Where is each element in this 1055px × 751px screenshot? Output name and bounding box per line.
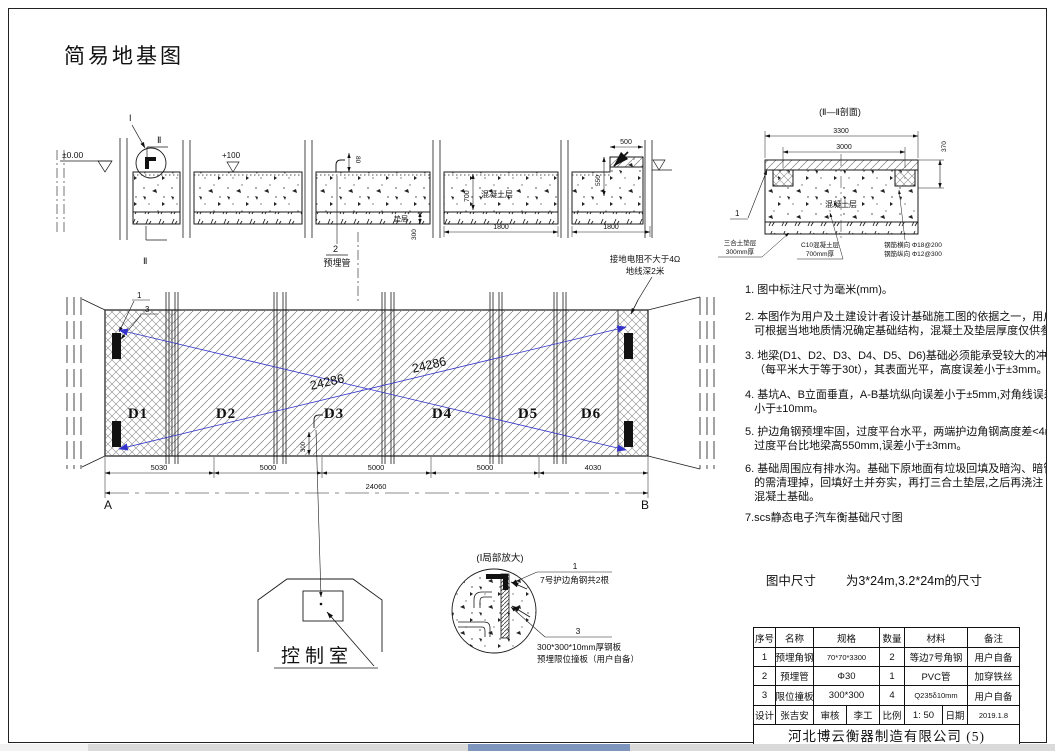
- header-remark: 备注: [968, 628, 1019, 647]
- cell-spec: Φ30: [814, 667, 880, 685]
- parts-table: 序号 名称 规格 数量 材料 备注 1 预埋角钢 70*70*3300 2 等边…: [753, 627, 1020, 745]
- dim-segment-1: 5030: [151, 463, 168, 472]
- cell-material: Q235δ10mm: [905, 686, 968, 705]
- checker-name: 李工: [847, 706, 880, 724]
- dim-segment-2: 5000: [260, 463, 277, 472]
- note-line: 2. 本图作为用户及土建设计者设计基础施工图的依据之一，用户: [745, 310, 1046, 324]
- note-line: 混凝土基础。: [745, 490, 1046, 504]
- plan-ref-1: 1: [137, 291, 142, 300]
- cell-qty: 4: [880, 686, 905, 705]
- corner-a-label: A: [104, 498, 112, 512]
- note-line: 小于±10mm。: [745, 402, 1046, 416]
- note-line: 过度平台比地梁高550mm,误差小于±3mm。: [745, 439, 1046, 453]
- note-3: 3. 地梁(D1、D2、D3、D4、D5、D6)基础必须能承受较大的冲击和 （每…: [745, 349, 1046, 377]
- top-cross-section: ±0.00: [57, 113, 672, 302]
- callout-i-label: I: [129, 113, 132, 123]
- dim-segment-4: 5000: [477, 463, 494, 472]
- cell-remark: 用户自备: [968, 686, 1019, 705]
- note-line: （每平米大于等于30t），其表面光平，高度误差小于±3mm。: [745, 363, 1046, 377]
- section-mark-bottom: Ⅱ: [143, 256, 147, 266]
- cell-no: 1: [754, 648, 776, 666]
- scale-label: 比例: [880, 706, 905, 724]
- dim-550: 550: [595, 175, 602, 186]
- bottom-strip-left: [0, 744, 88, 751]
- company-row: 河北博云衡器制造有限公司 (5): [754, 725, 1019, 744]
- corner-b-label: B: [641, 498, 649, 512]
- dim-1800-b: 1800: [603, 224, 619, 231]
- detail-view: (Ⅰ局部放大) 1 7号护边角钢共2根 3 300*300*10mm厚钢板 预埋…: [452, 552, 639, 664]
- date-label: 日期: [943, 706, 968, 724]
- bottom-strip-scroll[interactable]: [468, 744, 630, 751]
- plan-view: D1 D2 D3 D4 D5 D6 1 3 24286 24286 300 接: [67, 254, 714, 597]
- dim-total: 24060: [366, 482, 387, 491]
- note-line: 1. 图中标注尺寸为毫米(mm)。: [745, 283, 893, 297]
- cell-qty: 2: [880, 648, 905, 666]
- cell-no: 2: [754, 667, 776, 685]
- note-line: 7.scs静态电子汽车衡基础尺寸图: [745, 511, 903, 525]
- note-line: 5. 护边角钢预埋牢固，过度平台水平，两端护边角钢高度差<4mm: [745, 425, 1046, 439]
- control-room-label: 控制室: [281, 645, 353, 667]
- cell-remark: 加穿铁丝: [968, 667, 1019, 685]
- designer-name: 张吉安: [776, 706, 814, 724]
- cell-name: 预埋管: [776, 667, 814, 685]
- scale-value: 1: 50: [905, 706, 943, 724]
- note-line: 可根据当地地质情况确定基础结构，混凝土及垫层厚度仅供参: [745, 324, 1046, 338]
- check-label: 审核: [814, 706, 847, 724]
- cell-material: PVC管: [905, 667, 968, 685]
- header-name: 名称: [776, 628, 814, 647]
- note-line: 4. 基坑A、B立面垂直，A-B基坑纵向误差小于±5mm,对角线误差: [745, 388, 1046, 402]
- slab-label-d3: D3: [324, 406, 344, 422]
- level-zero-label: ±0.00: [62, 150, 83, 160]
- detail-ref-3: 3: [576, 626, 581, 636]
- header-material: 材料: [905, 628, 968, 647]
- cell-name: 限位撞板: [776, 686, 814, 705]
- header-spec: 规格: [814, 628, 880, 647]
- table-header-row: 序号 名称 规格 数量 材料 备注: [754, 628, 1019, 648]
- detail-ref-3-text-line2: 预埋限位撞板（用户自备）: [537, 654, 639, 664]
- concrete-layer-label: 混凝土层: [481, 189, 513, 199]
- plan-dim-300: 300: [301, 441, 307, 452]
- dim-segment-3: 5000: [368, 463, 385, 472]
- dim-segment-5: 4030: [585, 463, 602, 472]
- detail-ref-3-text-line1: 300*300*10mm厚钢板: [537, 642, 622, 652]
- note-4: 4. 基坑A、B立面垂直，A-B基坑纵向误差小于±5mm,对角线误差 小于±10…: [745, 388, 1046, 416]
- date-value: 2019.1.8: [968, 706, 1019, 724]
- cell-remark: 用户自备: [968, 648, 1019, 666]
- plan-ref-3: 3: [145, 305, 150, 314]
- level-plus100-label: +100: [222, 151, 241, 160]
- grounding-note-line2: 地线深2米: [626, 266, 665, 276]
- design-label: 设计: [754, 706, 776, 724]
- dim-1800-a: 1800: [493, 224, 509, 231]
- table-row: 1 预埋角钢 70*70*3300 2 等边7号角钢 用户自备: [754, 648, 1019, 667]
- note-5: 5. 护边角钢预埋牢固，过度平台水平，两端护边角钢高度差<4mm 过度平台比地梁…: [745, 425, 1046, 453]
- header-qty: 数量: [880, 628, 905, 647]
- signature-row: 设计 张吉安 审核 李工 比例 1: 50 日期 2019.1.8: [754, 706, 1019, 725]
- cushion-layer-label: 垫层: [394, 214, 408, 223]
- slab-label-d6: D6: [581, 406, 601, 422]
- dim-500: 500: [620, 139, 632, 146]
- note-7: 7.scs静态电子汽车衡基础尺寸图: [745, 511, 903, 525]
- cell-material: 等边7号角钢: [905, 648, 968, 666]
- table-row: 3 限位撞板 300*300 4 Q235δ10mm 用户自备: [754, 686, 1019, 706]
- pipe-ref-no: 2: [333, 244, 338, 254]
- drawing-sheet: 简易地基图: [0, 0, 1055, 751]
- dim-80: 80: [354, 156, 361, 164]
- cell-spec: 300*300: [814, 686, 880, 705]
- header-no: 序号: [754, 628, 776, 647]
- grounding-note-line1: 接地电阻不大于4Ω: [610, 254, 681, 264]
- dim-300-top: 300: [411, 229, 418, 240]
- pipe-ref-label: 预埋管: [323, 257, 350, 268]
- detail-ref-1-text: 7号护边角钢共2根: [540, 575, 609, 585]
- detail-ref-1: 1: [573, 561, 578, 571]
- company-name: 河北博云衡器制造有限公司 (5): [754, 725, 1019, 744]
- size-note-value: 为3*24m,3.2*24m的尺寸: [846, 574, 982, 588]
- note-2: 2. 本图作为用户及土建设计者设计基础施工图的依据之一，用户 可根据当地地质情况…: [745, 310, 1046, 338]
- size-note-label: 图中尺寸: [766, 574, 816, 588]
- dim-700: 700: [464, 190, 471, 202]
- note-line: 的需清理掉，回填好土并夯实，再打三合土垫层,之后再浇注: [745, 476, 1046, 490]
- note-line: 3. 地梁(D1、D2、D3、D4、D5、D6)基础必须能承受较大的冲击和: [745, 349, 1046, 363]
- slab-label-d1: D1: [128, 406, 148, 422]
- note-line: 6. 基础周围应有排水沟。基础下原地面有垃圾回填及暗沟、暗管: [745, 462, 1046, 476]
- section-mark-top: Ⅱ: [157, 135, 161, 145]
- note-6: 6. 基础周围应有排水沟。基础下原地面有垃圾回填及暗沟、暗管 的需清理掉，回填好…: [745, 462, 1046, 504]
- cell-qty: 1: [880, 667, 905, 685]
- size-note: 图中尺寸为3*24m,3.2*24m的尺寸: [745, 556, 982, 603]
- cell-spec: 70*70*3300: [814, 648, 880, 666]
- cell-no: 3: [754, 686, 776, 705]
- slab-label-d5: D5: [518, 406, 538, 422]
- control-room-view: 控制室: [258, 579, 382, 668]
- bottom-strip: [0, 744, 1055, 751]
- cell-name: 预埋角钢: [776, 648, 814, 666]
- detail-title: (Ⅰ局部放大): [476, 552, 523, 564]
- table-row: 2 预埋管 Φ30 1 PVC管 加穿铁丝: [754, 667, 1019, 686]
- section-ii-ref-1: 1: [735, 209, 740, 218]
- slab-label-d2: D2: [216, 406, 236, 422]
- note-1: 1. 图中标注尺寸为毫米(mm)。: [745, 283, 893, 297]
